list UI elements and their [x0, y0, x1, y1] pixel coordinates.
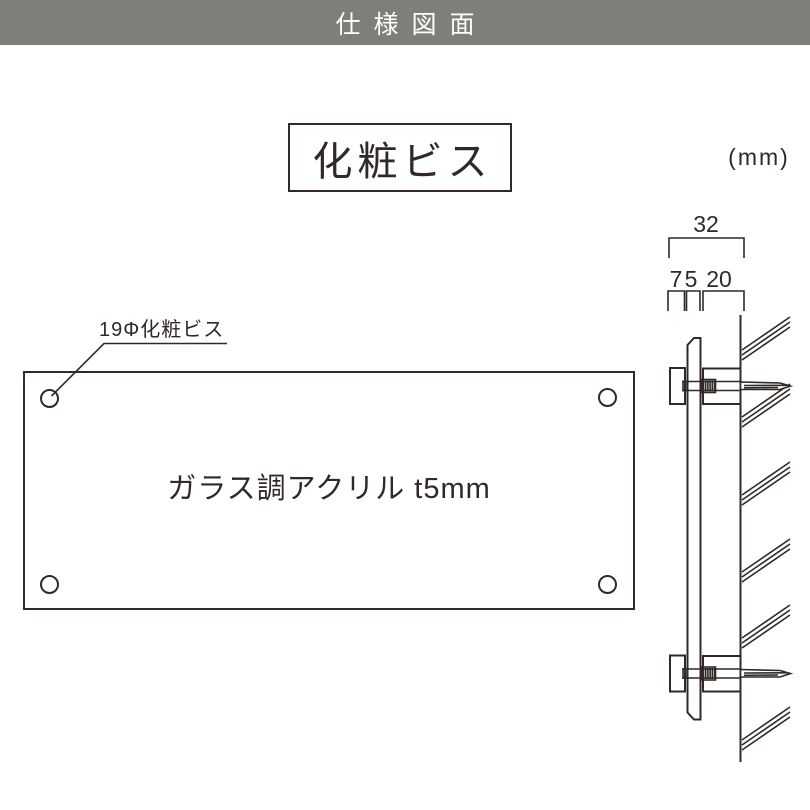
dim-standoff-bracket: [703, 291, 744, 311]
dim-standoff-text: 20: [706, 266, 732, 292]
dim-panel-text: 5: [685, 266, 698, 292]
dim-cap-bracket: [668, 291, 685, 311]
dim-cap-text: 7: [670, 266, 683, 292]
dim-total-text: 32: [693, 211, 719, 237]
linework-overlay: 32 7 5 20: [0, 0, 810, 810]
panel-side-view: [688, 338, 701, 720]
leader-line: [52, 344, 228, 397]
dim-panel-bracket: [687, 291, 701, 311]
dim-total-bracket: [669, 238, 744, 258]
spec-sheet-page: 仕様図面 化粧ビス (mm) 19Φ化粧ビス ガラス調アクリル t5mm: [0, 0, 810, 810]
